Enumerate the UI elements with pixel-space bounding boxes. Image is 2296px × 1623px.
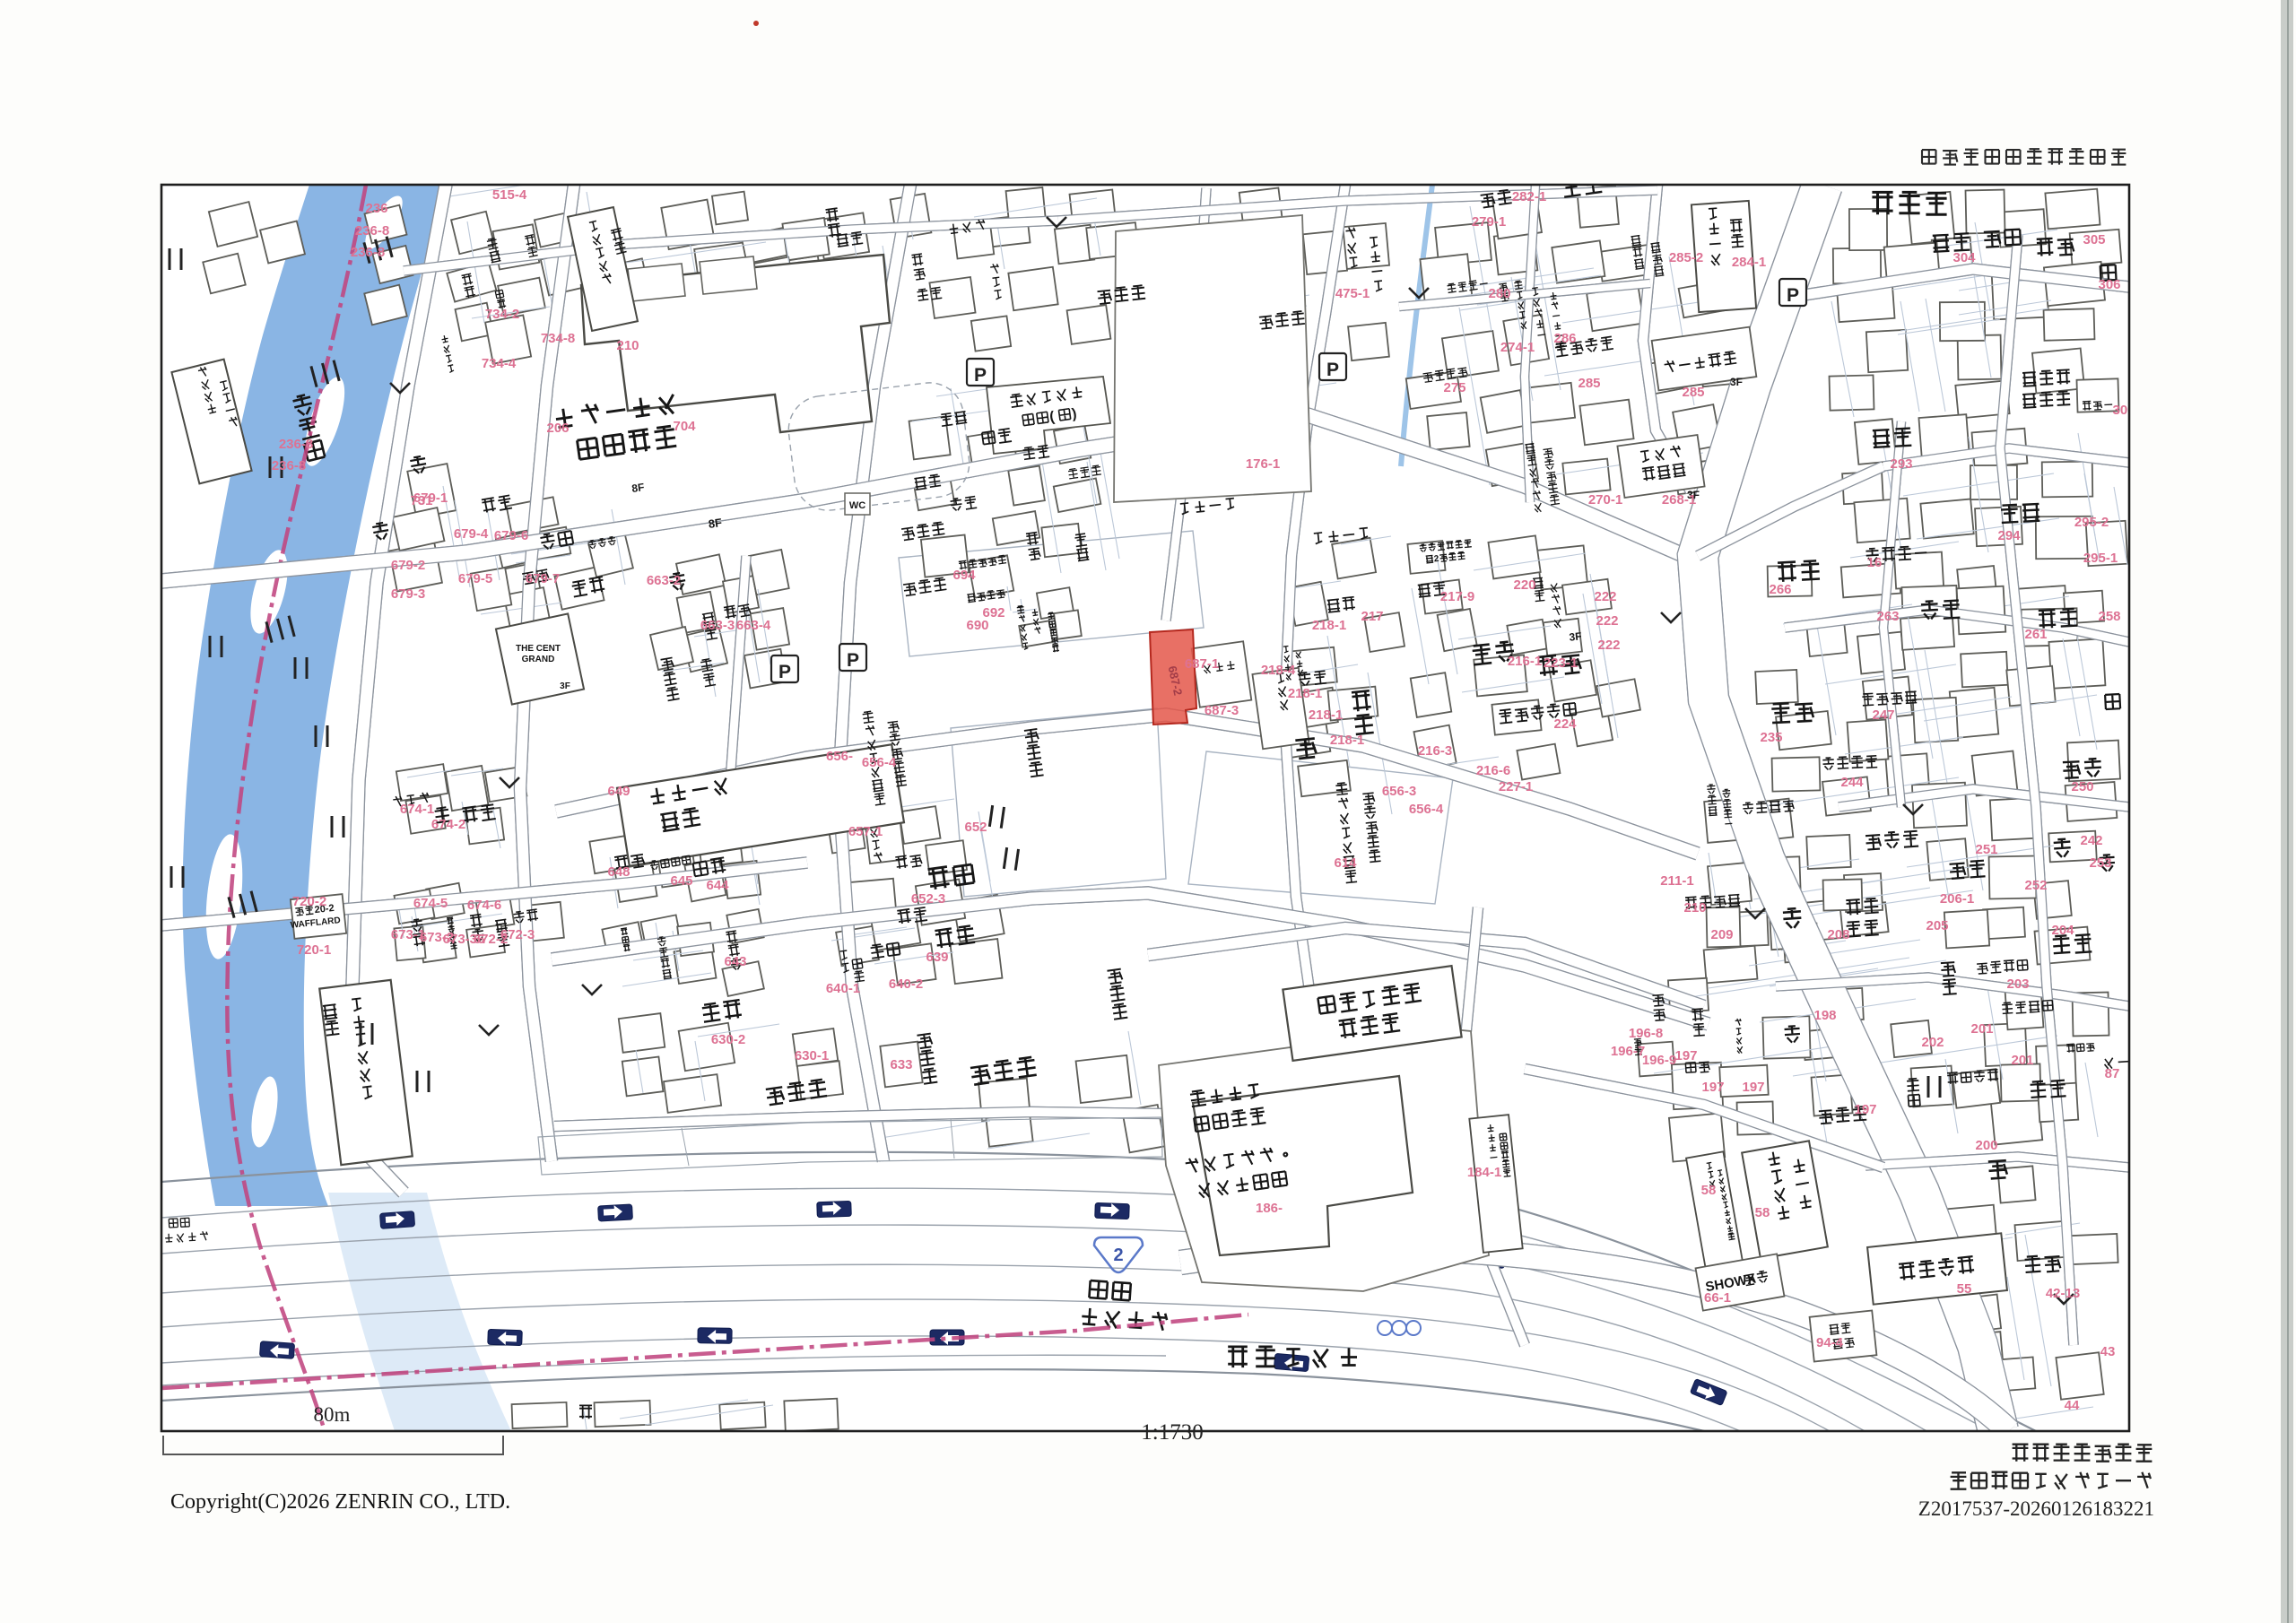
svg-text:94-4: 94-4 bbox=[1816, 1335, 1844, 1350]
svg-text:633: 633 bbox=[890, 1057, 912, 1072]
svg-text:220: 220 bbox=[1513, 577, 1535, 593]
svg-text:198: 198 bbox=[1813, 1008, 1836, 1023]
svg-text:196-9: 196-9 bbox=[1642, 1053, 1676, 1068]
svg-text:252: 252 bbox=[2024, 878, 2047, 893]
svg-text:295-2: 295-2 bbox=[2074, 515, 2109, 530]
svg-text:186-: 186- bbox=[1256, 1201, 1283, 1216]
svg-text:235: 235 bbox=[1760, 730, 1782, 745]
svg-text:720-2: 720-2 bbox=[292, 894, 326, 909]
svg-text:222: 222 bbox=[1596, 613, 1618, 629]
svg-text:P: P bbox=[1787, 285, 1799, 306]
svg-text:258: 258 bbox=[2098, 609, 2120, 624]
svg-text:224: 224 bbox=[1553, 716, 1577, 732]
svg-text:656-3: 656-3 bbox=[1382, 784, 1416, 799]
svg-text:P: P bbox=[778, 662, 791, 682]
svg-text:66-1: 66-1 bbox=[1704, 1290, 1731, 1306]
svg-text:679-6: 679-6 bbox=[494, 528, 528, 543]
svg-text:663-2: 663-2 bbox=[647, 573, 681, 588]
svg-text:663-3: 663-3 bbox=[700, 618, 735, 633]
svg-text:640-1: 640-1 bbox=[826, 981, 860, 996]
svg-text:222: 222 bbox=[1597, 638, 1620, 653]
svg-text:663-4: 663-4 bbox=[736, 618, 771, 633]
svg-text:679-5: 679-5 bbox=[458, 571, 492, 586]
svg-text:679-4: 679-4 bbox=[454, 526, 489, 542]
svg-text:216-3: 216-3 bbox=[1418, 743, 1452, 759]
svg-text:614: 614 bbox=[1334, 855, 1357, 871]
svg-text:694: 694 bbox=[952, 568, 976, 583]
svg-text:80m: 80m bbox=[314, 1403, 351, 1426]
svg-text:206: 206 bbox=[546, 421, 569, 436]
svg-text:58: 58 bbox=[1755, 1205, 1770, 1220]
svg-text:208: 208 bbox=[1827, 927, 1849, 942]
svg-text:690: 690 bbox=[966, 618, 988, 633]
svg-text:731: 731 bbox=[410, 493, 432, 508]
svg-text:236-8: 236-8 bbox=[355, 223, 389, 239]
svg-text:266: 266 bbox=[1769, 582, 1791, 597]
svg-text:206-1: 206-1 bbox=[1940, 891, 1974, 907]
svg-text:475-1: 475-1 bbox=[1335, 286, 1370, 301]
svg-text:261: 261 bbox=[2024, 627, 2047, 642]
svg-text:652-3: 652-3 bbox=[911, 891, 945, 907]
svg-text:734-8: 734-8 bbox=[541, 331, 575, 346]
svg-text:197: 197 bbox=[1674, 1048, 1697, 1063]
svg-text:734-2: 734-2 bbox=[485, 307, 519, 322]
svg-text:176-1: 176-1 bbox=[1246, 456, 1280, 472]
svg-text:8F: 8F bbox=[708, 516, 723, 531]
svg-text:236-8: 236-8 bbox=[272, 458, 306, 473]
svg-text:274-1: 274-1 bbox=[1500, 340, 1535, 355]
svg-text:649: 649 bbox=[607, 784, 630, 799]
svg-text:652: 652 bbox=[964, 820, 987, 835]
svg-text:227-1: 227-1 bbox=[1499, 779, 1533, 794]
svg-text:275: 275 bbox=[1443, 380, 1465, 395]
svg-text:THE CENT: THE CENT bbox=[516, 644, 561, 654]
svg-text:515-4: 515-4 bbox=[492, 187, 527, 203]
svg-text:643: 643 bbox=[724, 954, 746, 969]
svg-text:42-13: 42-13 bbox=[2046, 1286, 2080, 1301]
svg-text:87: 87 bbox=[2105, 1066, 2120, 1081]
svg-text:P: P bbox=[1326, 360, 1339, 380]
svg-text:251: 251 bbox=[1975, 842, 1997, 857]
svg-text:672-3: 672-3 bbox=[500, 927, 535, 942]
svg-text:210: 210 bbox=[1683, 900, 1706, 916]
svg-text:16: 16 bbox=[1867, 555, 1883, 570]
svg-text:656-4: 656-4 bbox=[1409, 802, 1444, 817]
svg-text:218-4: 218-4 bbox=[1261, 663, 1296, 678]
svg-text:674-1: 674-1 bbox=[400, 802, 434, 817]
svg-text:280: 280 bbox=[1488, 286, 1510, 301]
svg-text:644: 644 bbox=[706, 878, 729, 893]
svg-text:Copyright(C)2026 ZENRIN CO., L: Copyright(C)2026 ZENRIN CO., LTD. bbox=[170, 1490, 510, 1514]
svg-text:640-2: 640-2 bbox=[889, 976, 923, 992]
svg-text:285: 285 bbox=[1682, 385, 1704, 400]
svg-text:222: 222 bbox=[1594, 589, 1616, 604]
svg-text:679-3: 679-3 bbox=[391, 586, 425, 602]
svg-text:720-1: 720-1 bbox=[297, 942, 331, 958]
svg-text:44: 44 bbox=[2065, 1398, 2080, 1413]
svg-text:GRAND: GRAND bbox=[522, 655, 555, 664]
svg-text:216-6: 216-6 bbox=[1476, 763, 1510, 778]
svg-text:648: 648 bbox=[607, 864, 630, 880]
svg-text:284-1: 284-1 bbox=[1732, 255, 1766, 270]
svg-text:2: 2 bbox=[1113, 1245, 1123, 1265]
svg-text:304: 304 bbox=[1952, 250, 1976, 265]
svg-text:295-1: 295-1 bbox=[2083, 551, 2118, 566]
svg-text:1:1730: 1:1730 bbox=[1141, 1420, 1203, 1445]
svg-text:43: 43 bbox=[2100, 1344, 2116, 1359]
svg-text:236-8: 236-8 bbox=[279, 437, 313, 452]
svg-text:P: P bbox=[974, 365, 987, 386]
svg-text:253: 253 bbox=[2089, 855, 2111, 871]
svg-text:674-2: 674-2 bbox=[431, 817, 465, 832]
svg-text:630-2: 630-2 bbox=[711, 1032, 745, 1047]
svg-text:286: 286 bbox=[1553, 331, 1576, 346]
svg-text:3F: 3F bbox=[1569, 629, 1582, 643]
svg-text:236-8: 236-8 bbox=[351, 245, 385, 260]
svg-text:645: 645 bbox=[670, 873, 692, 889]
svg-text:204: 204 bbox=[2051, 923, 2074, 938]
svg-text:201: 201 bbox=[1970, 1021, 1993, 1037]
svg-text:218-1: 218-1 bbox=[1312, 618, 1346, 633]
svg-text:202: 202 bbox=[1921, 1035, 1944, 1050]
svg-text:734-4: 734-4 bbox=[482, 356, 517, 371]
svg-text:3F: 3F bbox=[1730, 376, 1743, 388]
svg-text:236: 236 bbox=[365, 201, 387, 216]
svg-text:656-: 656- bbox=[826, 749, 853, 764]
svg-text:674-5: 674-5 bbox=[413, 896, 448, 911]
svg-text:704: 704 bbox=[673, 419, 696, 434]
svg-text:3F: 3F bbox=[560, 681, 570, 691]
svg-text:197: 197 bbox=[1742, 1080, 1764, 1095]
svg-text:58: 58 bbox=[1701, 1183, 1717, 1198]
svg-text:247: 247 bbox=[1872, 707, 1894, 723]
svg-text:211-1: 211-1 bbox=[1660, 873, 1694, 889]
svg-text:184-1: 184-1 bbox=[1467, 1165, 1501, 1180]
svg-text:293: 293 bbox=[1890, 456, 1912, 472]
svg-text:679-7: 679-7 bbox=[526, 571, 560, 586]
svg-text:196-7: 196-7 bbox=[1611, 1044, 1645, 1059]
svg-text:P: P bbox=[847, 650, 859, 671]
svg-text:217-9: 217-9 bbox=[1440, 589, 1474, 604]
svg-text:268-1: 268-1 bbox=[1662, 492, 1696, 508]
svg-text:687-1: 687-1 bbox=[1185, 656, 1219, 672]
svg-text:203: 203 bbox=[2006, 976, 2029, 992]
svg-text:656-4: 656-4 bbox=[862, 755, 897, 770]
svg-text:687-3: 687-3 bbox=[1205, 703, 1239, 718]
svg-text:218-1: 218-1 bbox=[1309, 707, 1343, 723]
svg-text:218-1: 218-1 bbox=[1288, 686, 1322, 701]
svg-text:197: 197 bbox=[1854, 1102, 1876, 1117]
svg-text:294: 294 bbox=[1997, 528, 2021, 543]
svg-text:285-2: 285-2 bbox=[1669, 250, 1703, 265]
svg-text:223-1: 223-1 bbox=[1544, 655, 1578, 671]
svg-text:205: 205 bbox=[1926, 918, 1948, 933]
svg-text:197: 197 bbox=[1701, 1080, 1724, 1095]
svg-text:305: 305 bbox=[2083, 232, 2105, 247]
svg-text:263: 263 bbox=[1876, 609, 1899, 624]
svg-text:639: 639 bbox=[926, 950, 948, 965]
svg-text:657-1: 657-1 bbox=[848, 824, 883, 839]
svg-text:282-1: 282-1 bbox=[1512, 189, 1546, 204]
svg-text:270-1: 270-1 bbox=[1588, 492, 1622, 508]
svg-text:679-2: 679-2 bbox=[391, 558, 425, 573]
svg-text:55: 55 bbox=[1957, 1281, 1972, 1297]
svg-text:216-1: 216-1 bbox=[1508, 654, 1542, 669]
svg-text:306: 306 bbox=[2098, 277, 2120, 292]
svg-text:674-6: 674-6 bbox=[467, 898, 501, 913]
svg-text:210: 210 bbox=[616, 338, 639, 353]
svg-text:196-8: 196-8 bbox=[1629, 1026, 1663, 1041]
svg-text:244: 244 bbox=[1840, 775, 1864, 790]
svg-text:217: 217 bbox=[1361, 609, 1383, 624]
svg-text:8F: 8F bbox=[631, 481, 646, 495]
svg-text:201: 201 bbox=[2011, 1053, 2033, 1068]
svg-text:Z2017537-20260126183221: Z2017537-20260126183221 bbox=[1918, 1497, 2154, 1520]
svg-text:250: 250 bbox=[2071, 779, 2093, 794]
svg-text:200: 200 bbox=[1975, 1138, 1997, 1153]
svg-text:285: 285 bbox=[1578, 376, 1600, 391]
svg-text:WC: WC bbox=[849, 500, 865, 511]
svg-text:209: 209 bbox=[1710, 927, 1733, 942]
svg-text:242: 242 bbox=[2080, 833, 2102, 848]
svg-text:279-1: 279-1 bbox=[1472, 214, 1506, 230]
svg-text:218-1: 218-1 bbox=[1330, 733, 1364, 748]
svg-text:630-1: 630-1 bbox=[795, 1048, 829, 1063]
